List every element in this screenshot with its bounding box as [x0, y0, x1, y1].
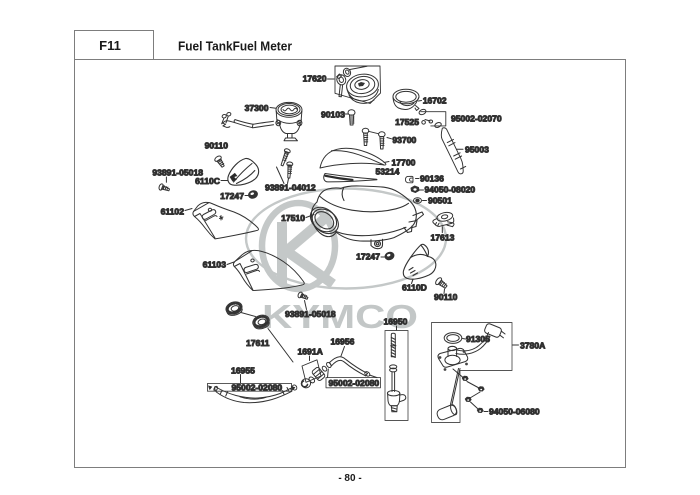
svg-text:93891-04012: 93891-04012 [265, 183, 316, 193]
svg-text:17620: 17620 [303, 74, 327, 84]
svg-text:17247: 17247 [356, 252, 380, 262]
svg-text:95002-02070: 95002-02070 [451, 113, 502, 123]
svg-text:94050-06080: 94050-06080 [489, 407, 540, 417]
svg-text:61102: 61102 [161, 207, 185, 217]
svg-text:93891-05018: 93891-05018 [285, 309, 336, 319]
svg-text:95002-02080: 95002-02080 [232, 382, 283, 392]
svg-text:90103: 90103 [321, 110, 345, 120]
svg-text:16955: 16955 [231, 365, 255, 375]
svg-text:93700: 93700 [392, 135, 416, 145]
svg-text:16956: 16956 [331, 337, 355, 347]
svg-text:95003: 95003 [465, 145, 489, 155]
svg-text:95002-02080: 95002-02080 [329, 378, 380, 388]
svg-text:6110C: 6110C [195, 176, 220, 186]
svg-text:16702: 16702 [423, 96, 447, 106]
svg-text:90110: 90110 [205, 141, 229, 151]
svg-text:17613: 17613 [431, 233, 455, 243]
svg-text:F11: F11 [99, 38, 121, 53]
svg-text:17525: 17525 [395, 117, 419, 127]
svg-text:6110D: 6110D [402, 283, 427, 293]
svg-text:37300: 37300 [245, 103, 269, 113]
svg-text:90110: 90110 [434, 292, 458, 302]
svg-text:Fuel TankFuel Meter: Fuel TankFuel Meter [178, 38, 292, 53]
svg-text:17247: 17247 [220, 191, 244, 201]
svg-text:90501: 90501 [428, 196, 452, 206]
svg-text:91305: 91305 [466, 334, 490, 344]
svg-text:- 80 -: - 80 - [338, 473, 361, 484]
svg-text:94050-08020: 94050-08020 [425, 185, 476, 195]
svg-text:61103: 61103 [203, 260, 227, 270]
svg-text:16950: 16950 [384, 317, 408, 327]
svg-text:1691A: 1691A [298, 347, 323, 357]
svg-text:3780A: 3780A [520, 341, 545, 351]
svg-text:17510: 17510 [281, 213, 305, 223]
svg-text:17611: 17611 [246, 338, 270, 348]
svg-text:53214: 53214 [376, 167, 400, 177]
svg-text:90136: 90136 [420, 174, 444, 184]
